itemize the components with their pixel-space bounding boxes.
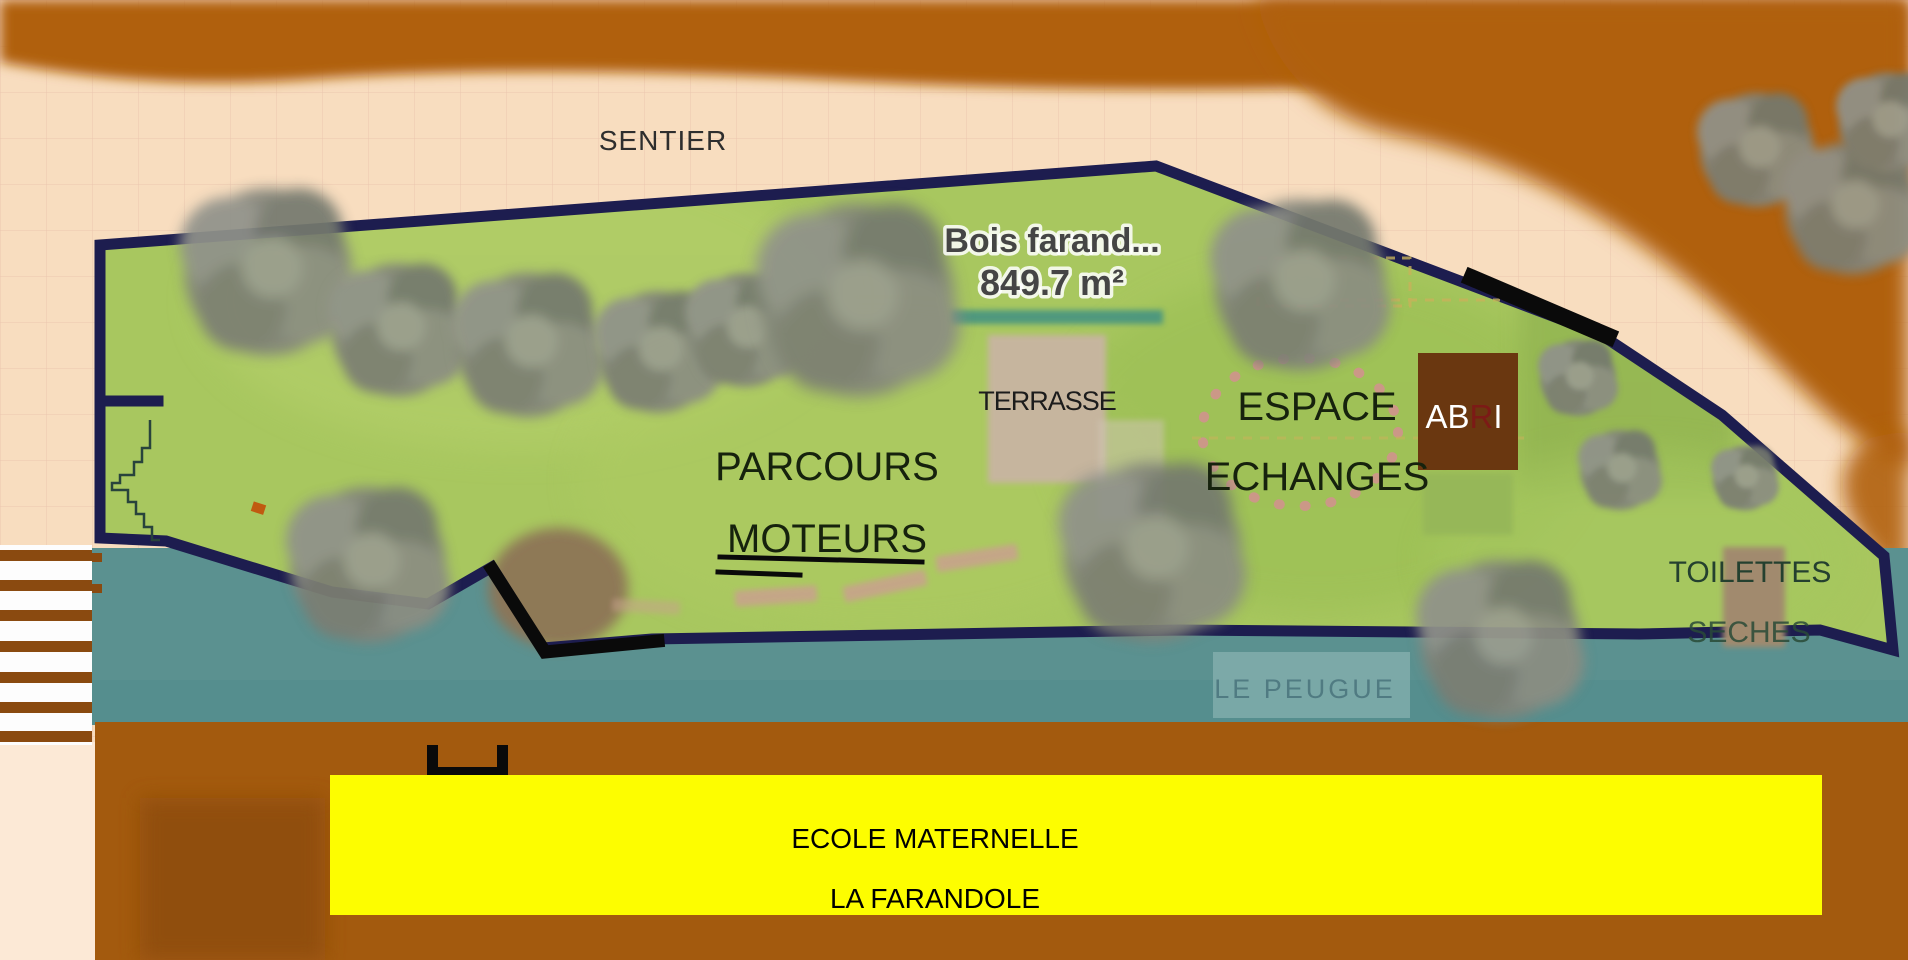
tree (286, 487, 450, 643)
abri-label-part3: I (1493, 398, 1502, 435)
abri-label: ABRI (1425, 398, 1502, 435)
tree (756, 203, 960, 397)
tree (1210, 200, 1390, 371)
sentier-label: SENTIER (599, 125, 727, 156)
tree (1416, 560, 1584, 720)
school-banner-line1: ECOLE MATERNELLE (791, 823, 1078, 854)
bush (1711, 446, 1779, 511)
school-banner-line2: LA FARANDOLE (830, 883, 1040, 914)
tree (452, 273, 604, 417)
striped-crossing (0, 545, 102, 745)
toilettes-label-line2: SECHES (1687, 616, 1810, 649)
abri-label-part2: R (1470, 398, 1494, 435)
toilettes-label-line1: TOILETTES (1669, 556, 1832, 589)
underline-mark (718, 572, 800, 575)
site-plan: SENTIER Bois farand... 849.7 m² TERRASSE… (0, 0, 1908, 960)
tree (180, 188, 356, 355)
wood-name-label: Bois farand... (944, 222, 1159, 260)
espace-label-line1: ESPACE (1237, 385, 1396, 429)
abri-yard (1423, 473, 1513, 535)
wood-area-label: 849.7 m² (980, 262, 1124, 303)
abri-label-part1: AB (1425, 398, 1469, 435)
site-plan-canvas: SENTIER Bois farand... 849.7 m² TERRASSE… (0, 0, 1908, 960)
parcours-label-line1: PARCOURS (715, 445, 939, 489)
river-label: LE PEUGUE (1214, 674, 1396, 704)
terrasse-label: TERRASSE (978, 386, 1116, 416)
espace-label-line2: ECHANGES (1205, 455, 1430, 499)
tree (328, 264, 468, 397)
parcours-label-line2: MOTEURS (727, 517, 927, 561)
bush (1538, 340, 1618, 416)
bush (1578, 430, 1662, 510)
hedge-strip (950, 310, 1163, 324)
